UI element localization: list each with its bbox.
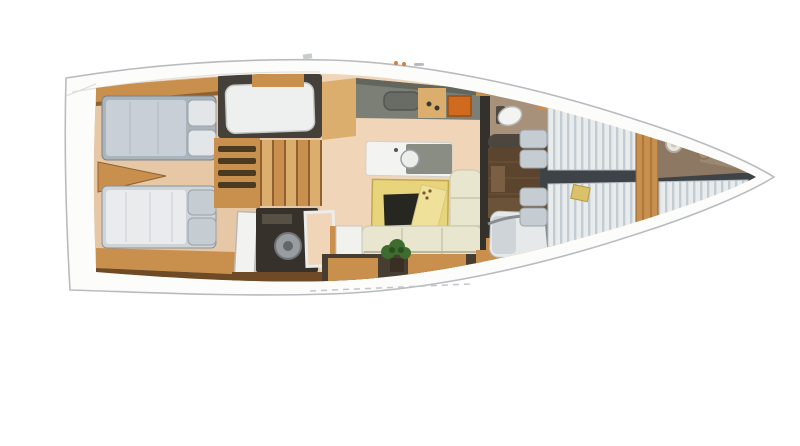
- galley-item: [435, 106, 440, 111]
- aft-stbd-pillow-lower: [188, 218, 216, 245]
- aft-port-pillow-lower: [188, 130, 216, 156]
- yacht-floor-plan: [0, 0, 800, 446]
- plant-foliage-dark: [398, 247, 404, 253]
- deck-fitting-orange: [402, 62, 406, 66]
- deck-fitting-orange: [394, 61, 398, 65]
- drawer-slot: [218, 170, 256, 176]
- aft-stbd-bed-duvet: [106, 190, 186, 244]
- utility-door: [234, 212, 257, 277]
- galley-sink: [384, 92, 420, 110]
- single-berth-mid: [225, 82, 315, 133]
- single-berth-headboard: [252, 74, 304, 87]
- interior: [94, 70, 756, 290]
- drawer-slot: [218, 146, 256, 152]
- salon-aft-cabinet: [328, 258, 378, 282]
- berth-item: [571, 184, 591, 201]
- plant-pot: [390, 258, 404, 272]
- mast-step-mark: [303, 53, 313, 59]
- stair-tread: [286, 140, 296, 206]
- plant-foliage-dark: [389, 247, 395, 253]
- drawer-slot: [218, 158, 256, 164]
- fwd-stbd-pillow: [520, 188, 547, 206]
- stair-tread: [310, 140, 320, 206]
- galley-item: [427, 102, 432, 107]
- utility-shelf: [262, 214, 292, 224]
- yacht-floor-plan-image: [0, 0, 800, 446]
- notepad-mark: [422, 191, 425, 194]
- notepad-mark: [425, 196, 428, 199]
- aft-stbd-pillow-upper: [188, 190, 216, 215]
- companionway-stairs: [260, 140, 322, 206]
- galley-wood-insert: [418, 88, 446, 118]
- stair-tread: [262, 140, 272, 206]
- stair-tread: [298, 140, 308, 206]
- fwd-stbd-pillow: [520, 208, 547, 226]
- drawer-slot: [218, 182, 256, 188]
- stove: [448, 96, 471, 116]
- galley-wood-cabinet: [322, 78, 356, 140]
- deck-fitting-gray: [414, 63, 424, 66]
- aft-port-pillow-upper: [188, 100, 216, 126]
- island-faucet: [394, 148, 398, 152]
- aft-port-bed-duvet: [106, 100, 186, 156]
- notepad-mark: [428, 189, 431, 192]
- fwd-port-pillow: [520, 150, 547, 168]
- stair-tread: [274, 140, 284, 206]
- island-sink: [401, 150, 419, 168]
- fwd-port-pillow: [520, 130, 547, 148]
- appliance-drum-center: [283, 241, 293, 251]
- corridor-step: [491, 166, 505, 192]
